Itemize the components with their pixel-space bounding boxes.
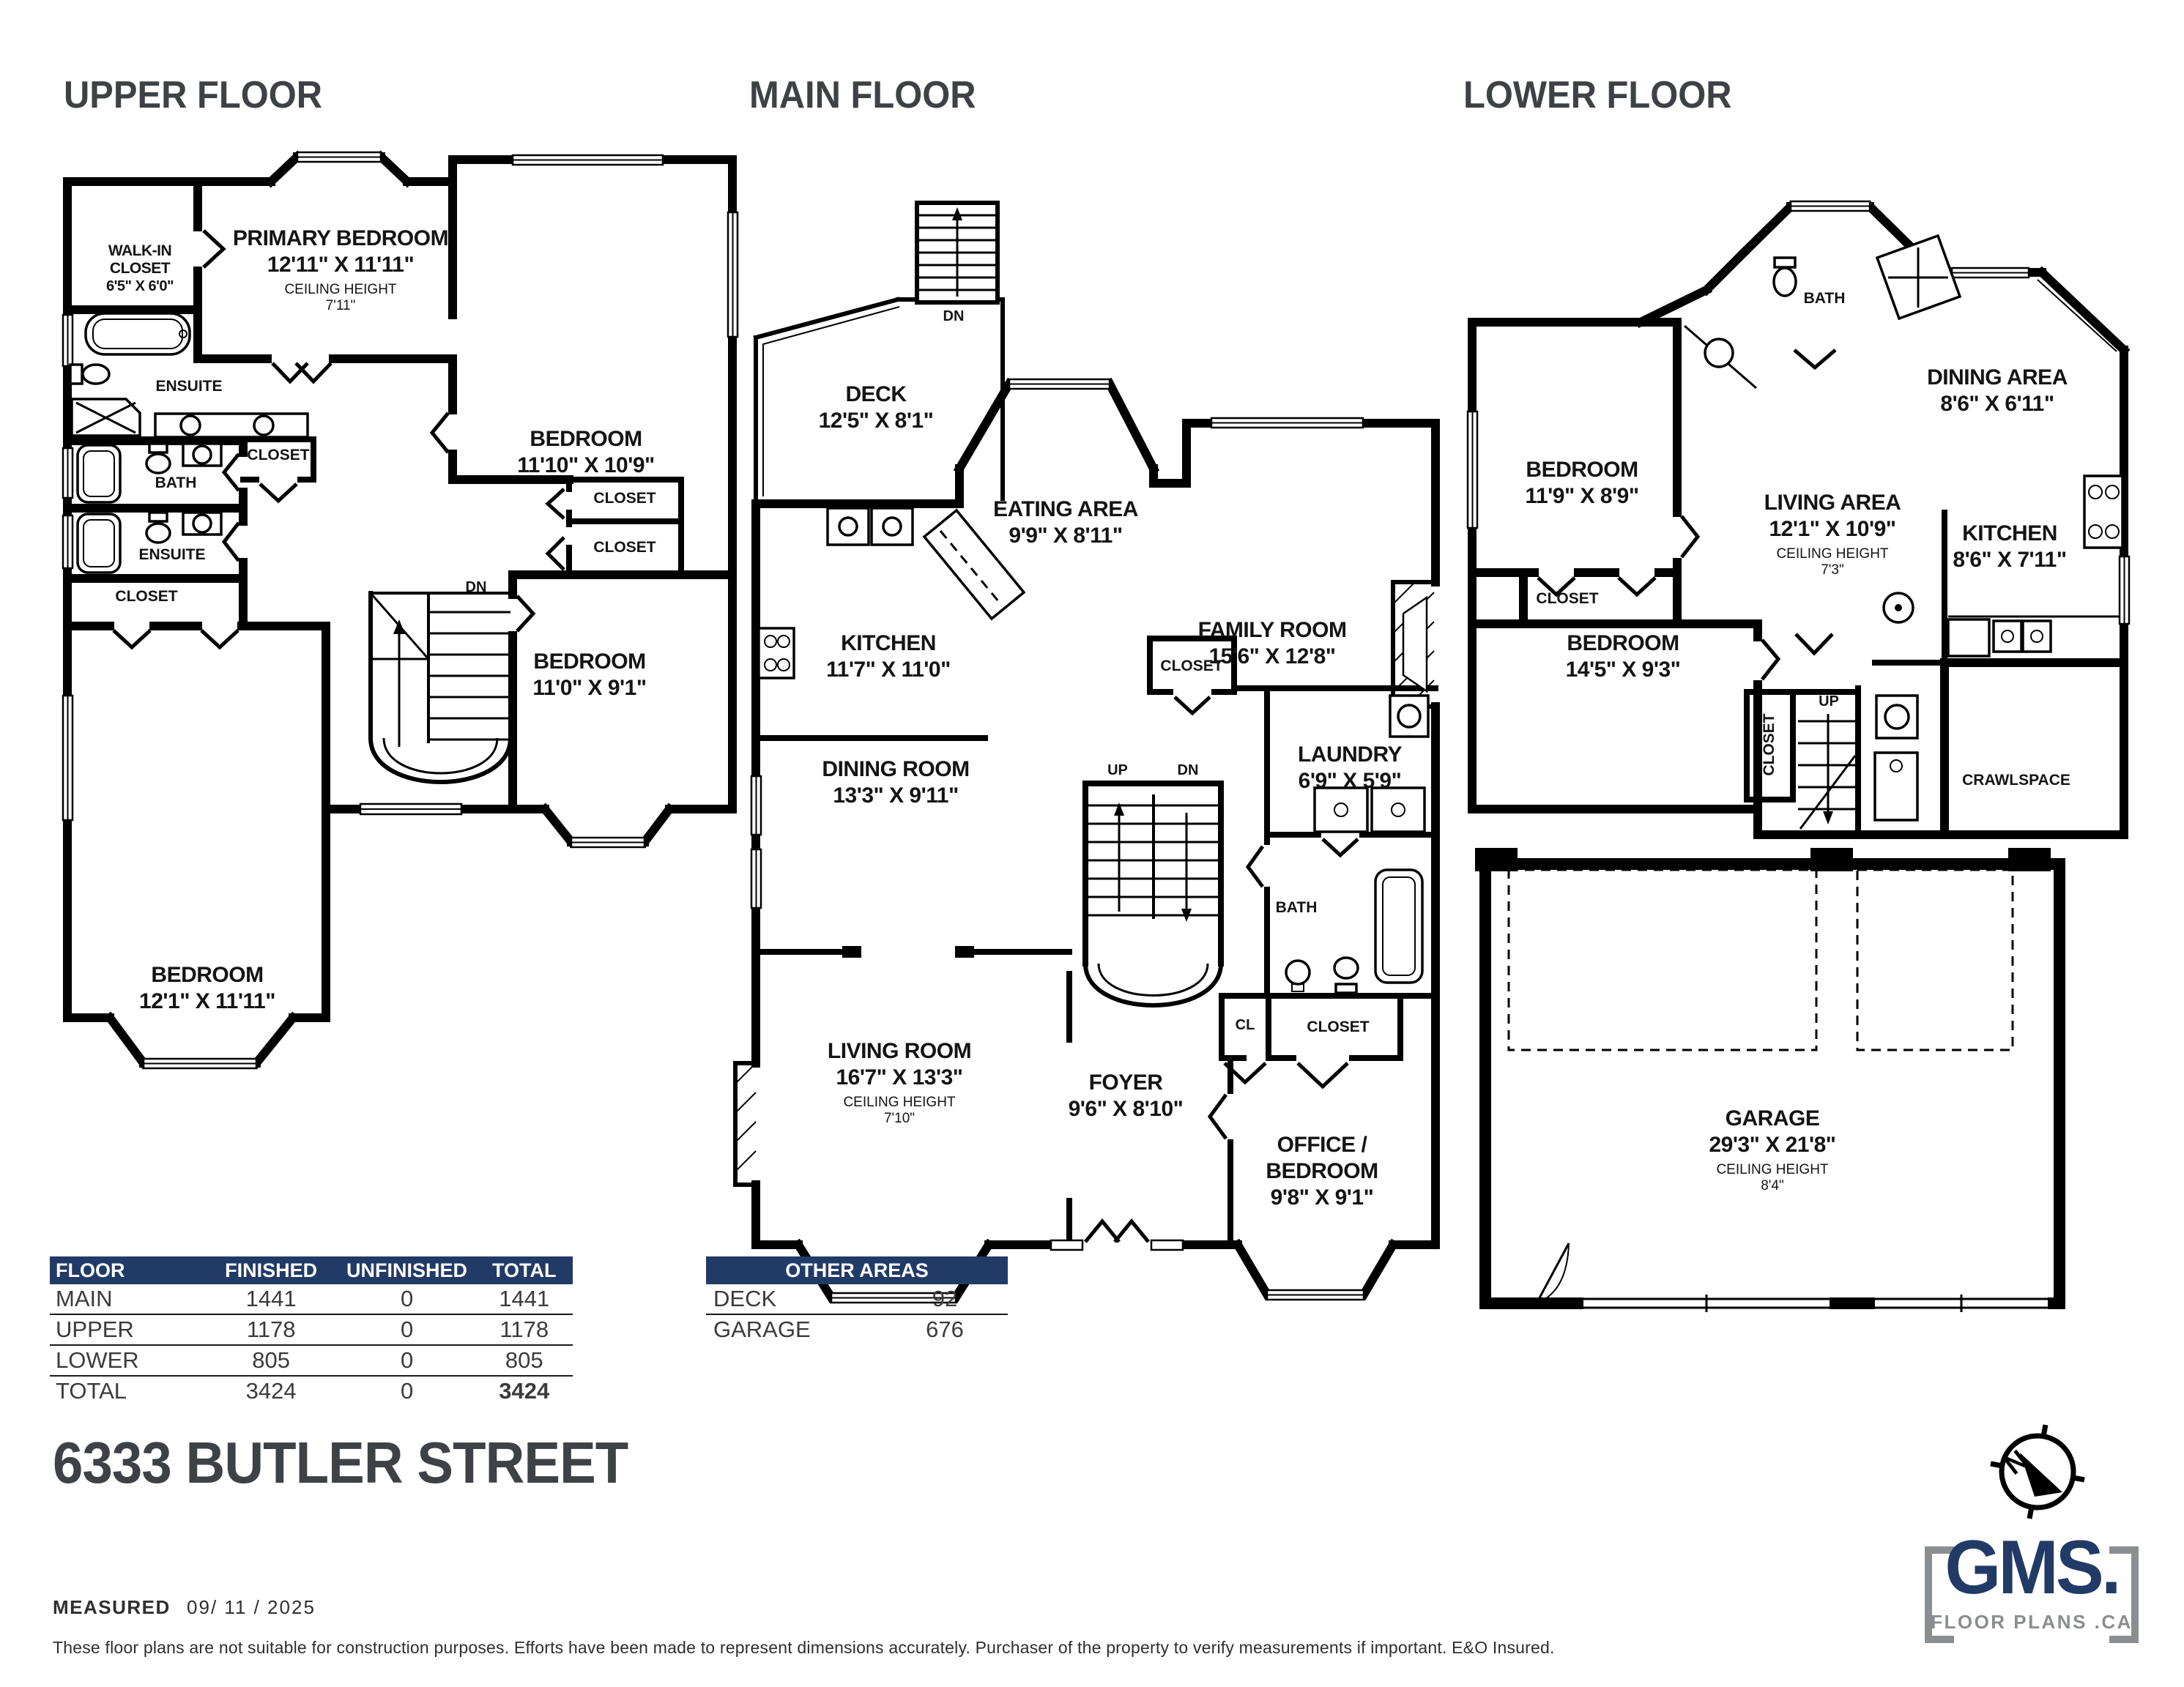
table-row: UPPER 1178 0 1178 xyxy=(50,1315,573,1346)
toilet-icon xyxy=(146,513,170,543)
toilet-icon xyxy=(70,365,109,384)
bathtub-icon xyxy=(78,445,120,502)
floor-plan-page: UPPER FLOOR MAIN FLOOR LOWER FLOOR xyxy=(0,0,2184,1687)
table-header-row: OTHER AREAS xyxy=(706,1256,1008,1284)
room-label-kitchen: KITCHEN 8'6" X 7'11" xyxy=(1953,521,2066,573)
floor-area-table: FLOOR FINISHED UNFINISHED TOTAL MAIN 144… xyxy=(50,1256,573,1406)
double-sink-icon xyxy=(828,508,913,545)
bathtub-icon xyxy=(78,514,120,573)
room-label-deck: DECK 12'5" X 8'1" xyxy=(819,381,934,434)
toilet-icon xyxy=(1774,258,1796,296)
table-row-total: TOTAL 3424 0 3424 xyxy=(50,1377,573,1406)
laundry-sink-icon xyxy=(1390,696,1428,737)
logo-text: GMS. xyxy=(1930,1524,2133,1612)
parking-stall-outline xyxy=(1857,870,2013,1050)
logo-subtext: FLOOR PLANS .CA xyxy=(1925,1611,2139,1634)
room-label-bath: BATH xyxy=(1804,286,1846,312)
room-label-ensuite: ENSUITE xyxy=(155,373,222,400)
room-label-walk-in-closet: WALK-IN CLOSET 6'5" X 6'0" xyxy=(92,242,187,295)
room-label-closet: CLOSET xyxy=(1756,713,1783,775)
bathtub-icon xyxy=(1375,870,1422,983)
lower-floor-title: LOWER FLOOR xyxy=(1463,73,1732,117)
stairs-up-label: UP xyxy=(1819,688,1839,715)
room-label-ensuite: ENSUITE xyxy=(138,542,205,568)
water-heater-icon xyxy=(1875,753,1917,820)
furnace-icon xyxy=(1884,593,1913,622)
room-label-closet: CLOSET xyxy=(115,584,177,610)
room-label-bath: BATH xyxy=(1276,895,1318,921)
lower-staircase-icon xyxy=(1798,714,1858,829)
column-header: FINISHED xyxy=(204,1259,338,1282)
sink-icon xyxy=(183,513,221,535)
room-label-foyer: FOYER 9'6" X 8'10" xyxy=(1069,1070,1184,1122)
table-row: LOWER 805 0 805 xyxy=(50,1346,573,1377)
table-row: GARAGE 676 xyxy=(706,1315,1008,1344)
bathtub-icon xyxy=(86,313,190,354)
room-label-dining-room: DINING ROOM 13'3" X 9'11" xyxy=(822,756,969,809)
main-exterior-stairs-icon xyxy=(917,203,998,302)
appliance-icon xyxy=(1948,619,1989,656)
room-label-bath: BATH xyxy=(155,470,197,496)
upper-staircase-icon xyxy=(371,593,510,782)
stairs-down-label: DN xyxy=(1178,757,1199,783)
garage-door-swing-icon xyxy=(1537,1243,1569,1303)
column-header: FLOOR xyxy=(50,1259,204,1282)
upper-floor-title: UPPER FLOOR xyxy=(64,73,322,117)
room-label-bedroom-2: BEDROOM 11'10" X 10'9" xyxy=(517,426,655,479)
garage-outline xyxy=(1475,848,2059,1314)
property-address: 6333 BUTLER STREET xyxy=(53,1429,628,1497)
sink-icon xyxy=(1286,961,1310,991)
room-label-closet: CLOSET xyxy=(1536,586,1598,612)
room-label-closet: CLOSET xyxy=(593,485,655,512)
toilet-icon xyxy=(146,444,170,473)
double-sink-icon xyxy=(155,414,308,437)
room-label-closet: CLOSET xyxy=(1307,1014,1369,1040)
shower-icon xyxy=(1877,236,1960,319)
toilet-icon xyxy=(1334,958,1358,993)
shower-icon xyxy=(72,399,140,436)
room-label-bedroom-1: BEDROOM 11'9" X 8'9" xyxy=(1525,457,1638,510)
stairs-down-label: DN xyxy=(943,303,965,329)
table-header-row: FLOOR FINISHED UNFINISHED TOTAL xyxy=(50,1256,573,1284)
room-label-kitchen: KITCHEN 11'7" X 11'0" xyxy=(826,630,951,683)
column-header: TOTAL xyxy=(476,1259,573,1282)
room-label-bedroom-2: BEDROOM 14'5" X 9'3" xyxy=(1566,630,1681,683)
room-label-garage: GARAGE 29'3" X 21'8" CEILING HEIGHT 8'4" xyxy=(1709,1106,1835,1193)
room-label-cl: CL xyxy=(1236,1012,1255,1038)
room-label-laundry: LAUNDRY 6'9" X 5'9" xyxy=(1298,742,1402,794)
room-label-primary-bedroom: PRIMARY BEDROOM 12'11" X 11'11" CEILING … xyxy=(233,226,448,313)
main-floor-title: MAIN FLOOR xyxy=(749,73,976,117)
fireplace-icon xyxy=(735,1063,756,1185)
measured-date: 09/ 11 / 2025 xyxy=(187,1596,316,1618)
room-label-living-area: LIVING AREA 12'1" X 10'9" CEILING HEIGHT… xyxy=(1764,490,1901,578)
other-areas-table: OTHER AREAS DECK 92 GARAGE 676 xyxy=(706,1256,1008,1344)
washer-icon xyxy=(1315,788,1367,832)
sink-icon xyxy=(183,444,221,466)
measured-date-line: MEASURED 09/ 11 / 2025 xyxy=(53,1596,316,1619)
table-row: MAIN 1441 0 1441 xyxy=(50,1284,573,1315)
room-label-crawlspace: CRAWLSPACE xyxy=(1962,767,2070,794)
room-label-living-room: LIVING ROOM 16'7" X 13'3" CEILING HEIGHT… xyxy=(828,1038,971,1126)
room-label-closet: CLOSET xyxy=(1160,653,1222,679)
measured-label: MEASURED xyxy=(53,1596,171,1618)
laundry-tub-icon xyxy=(1876,696,1917,738)
compass-icon: N xyxy=(1983,1419,2093,1529)
stove-icon xyxy=(759,628,794,678)
room-label-dining-area: DINING AREA 8'6" X 6'11" xyxy=(1927,365,2068,417)
dryer-icon xyxy=(1372,788,1425,832)
parking-stall-outline xyxy=(1509,870,1816,1050)
column-header: UNFINISHED xyxy=(338,1259,476,1282)
gms-logo: GMS. FLOOR PLANS .CA xyxy=(1925,1536,2139,1646)
disclaimer-text: These floor plans are not suitable for c… xyxy=(53,1638,1591,1658)
stairs-down-label: DN xyxy=(466,574,487,600)
main-staircase-icon xyxy=(1085,783,1221,1005)
room-label-bedroom-3: BEDROOM 11'0" X 9'1" xyxy=(532,649,646,701)
stairs-up-label: UP xyxy=(1107,757,1128,783)
table-row: DECK 92 xyxy=(706,1284,1008,1315)
room-label-eating-area: EATING AREA 9'9" X 8'11" xyxy=(993,496,1138,549)
stove-icon xyxy=(2084,476,2122,548)
room-label-closet: CLOSET xyxy=(247,442,309,469)
room-label-closet: CLOSET xyxy=(593,535,655,561)
room-label-office-bedroom: OFFICE / BEDROOM 9'8" X 9'1" xyxy=(1249,1132,1395,1211)
sink-icon xyxy=(1685,326,1756,388)
room-label-bedroom-4: BEDROOM 12'1" X 11'11" xyxy=(139,962,275,1015)
